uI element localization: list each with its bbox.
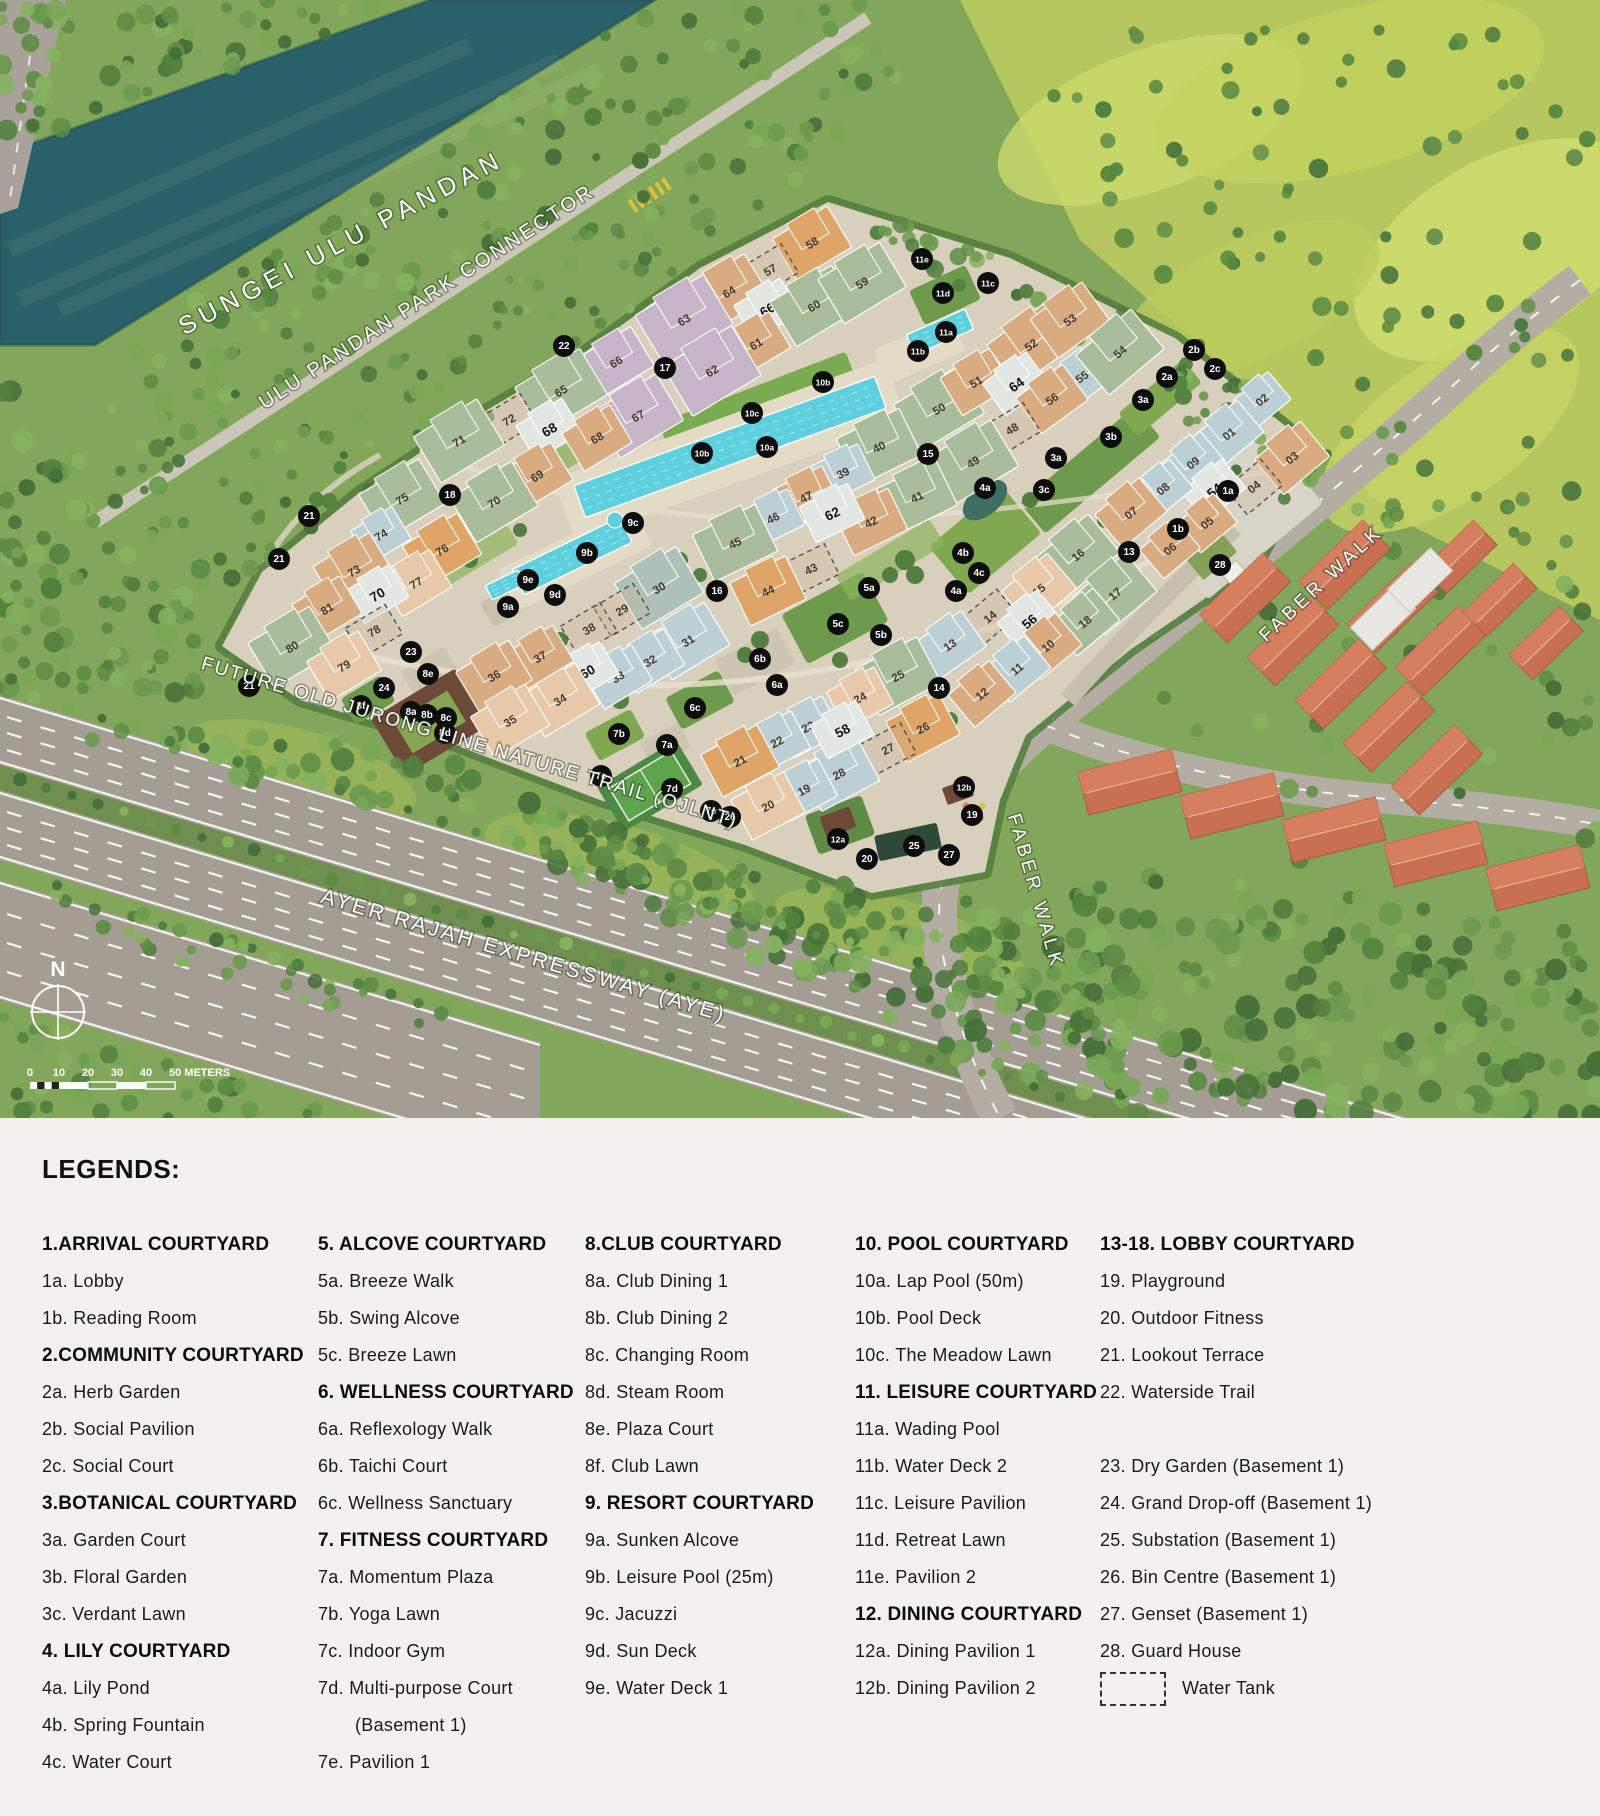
legend-item: 27. Genset (Basement 1) [1100, 1596, 1540, 1633]
legend-column-5: 13-18. LOBBY COURTYARD19. Playground20. … [1100, 1226, 1540, 1781]
legend-item: 22. Waterside Trail [1100, 1374, 1540, 1411]
svg-text:4a: 4a [979, 483, 991, 494]
legend-item: 6a. Reflexology Walk [318, 1411, 585, 1448]
legend-heading: 12. DINING COURTYARD [855, 1596, 1100, 1633]
svg-text:5b: 5b [875, 630, 887, 641]
svg-text:16: 16 [711, 586, 723, 597]
legend-item: 26. Bin Centre (Basement 1) [1100, 1559, 1540, 1596]
svg-text:17: 17 [659, 363, 671, 374]
legend-heading: 5. ALCOVE COURTYARD [318, 1226, 585, 1263]
legend-item: 8a. Club Dining 1 [585, 1263, 855, 1300]
legend-column-4: 10. POOL COURTYARD10a. Lap Pool (50m)10b… [855, 1226, 1100, 1781]
jacuzzi-9c [607, 512, 623, 528]
svg-text:21: 21 [273, 554, 285, 565]
svg-text:14: 14 [933, 683, 945, 694]
legend-item: 9d. Sun Deck [585, 1633, 855, 1670]
legend-item: 24. Grand Drop-off (Basement 1) [1100, 1485, 1540, 1522]
svg-text:21: 21 [303, 511, 315, 522]
legend-item: 5b. Swing Alcove [318, 1300, 585, 1337]
legend-title: LEGENDS: [42, 1154, 180, 1185]
svg-text:7a: 7a [661, 740, 673, 751]
amenity-badge-18: 18 [439, 484, 461, 506]
amenity-badge-16: 16 [706, 580, 728, 602]
legend-heading: 2.COMMUNITY COURTYARD [42, 1337, 318, 1374]
amenity-badge-3a: 3a [1132, 389, 1154, 411]
svg-text:4a: 4a [950, 586, 962, 597]
amenity-badge-11d: 11d [932, 282, 954, 304]
legend-item: 6c. Wellness Sanctuary [318, 1485, 585, 1522]
svg-text:28: 28 [1214, 560, 1226, 571]
amenity-badge-7b: 7b [608, 723, 630, 745]
site-plan-svg: 5857646661636059666265677268687169707574… [0, 0, 1600, 1118]
svg-text:9e: 9e [522, 575, 534, 586]
amenity-badge-13: 13 [1118, 541, 1140, 563]
legend-item: 19. Playground [1100, 1263, 1540, 1300]
legend-item-continuation: (Basement 1) [318, 1707, 585, 1744]
amenity-badge-6a: 6a [766, 674, 788, 696]
legend-item: 8c. Changing Room [585, 1337, 855, 1374]
legend-item: 11e. Pavilion 2 [855, 1559, 1100, 1596]
legend-heading: 13-18. LOBBY COURTYARD [1100, 1226, 1540, 1263]
legend-heading: 1.ARRIVAL COURTYARD [42, 1226, 318, 1263]
legend-heading: 10. POOL COURTYARD [855, 1226, 1100, 1263]
svg-text:13: 13 [1123, 547, 1135, 558]
legend-heading: 8.CLUB COURTYARD [585, 1226, 855, 1263]
amenity-badge-1a: 1a [1217, 480, 1239, 502]
legend-item: 7d. Multi-purpose Court [318, 1670, 585, 1707]
amenity-badge-24: 24 [373, 677, 395, 699]
amenity-badge-2b: 2b [1183, 339, 1205, 361]
legend-heading: 11. LEISURE COURTYARD [855, 1374, 1100, 1411]
svg-text:4c: 4c [973, 568, 985, 579]
legend-column-1: 1.ARRIVAL COURTYARD1a. Lobby1b. Reading … [42, 1226, 318, 1781]
amenity-badge-11a: 11a [935, 321, 957, 343]
legend-item: 11b. Water Deck 2 [855, 1448, 1100, 1485]
legend-heading: 6. WELLNESS COURTYARD [318, 1374, 585, 1411]
legend-item: 2a. Herb Garden [42, 1374, 318, 1411]
svg-text:2a: 2a [1161, 372, 1173, 383]
legend-item: 4b. Spring Fountain [42, 1707, 318, 1744]
legend-item: 8f. Club Lawn [585, 1448, 855, 1485]
svg-text:9c: 9c [627, 518, 639, 529]
amenity-badge-2c: 2c [1204, 358, 1226, 380]
svg-text:20: 20 [82, 1067, 94, 1079]
svg-text:12b: 12b [957, 783, 972, 793]
amenity-badge-12b: 12b [953, 776, 975, 798]
legend-heading: 7. FITNESS COURTYARD [318, 1522, 585, 1559]
amenity-badge-5a: 5a [858, 577, 880, 599]
legend-column-2: 5. ALCOVE COURTYARD5a. Breeze Walk5b. Sw… [318, 1226, 585, 1781]
amenity-badge-28: 28 [1209, 554, 1231, 576]
svg-text:0: 0 [27, 1067, 33, 1079]
amenity-badge-7a: 7a [656, 734, 678, 756]
legend-heading: 3.BOTANICAL COURTYARD [42, 1485, 318, 1522]
legend-item: 8b. Club Dining 2 [585, 1300, 855, 1337]
legend-item: 10a. Lap Pool (50m) [855, 1263, 1100, 1300]
svg-text:3a: 3a [1050, 453, 1062, 464]
amenity-badge-1b: 1b [1167, 518, 1189, 540]
legend-item: 9b. Leisure Pool (25m) [585, 1559, 855, 1596]
svg-text:10b: 10b [816, 378, 831, 388]
amenity-badge-21: 21 [298, 505, 320, 527]
svg-text:6a: 6a [771, 680, 783, 691]
amenity-badge-9c: 9c [622, 512, 644, 534]
legend-item: 8d. Steam Room [585, 1374, 855, 1411]
svg-text:3a: 3a [1137, 395, 1149, 406]
legend-item: 9c. Jacuzzi [585, 1596, 855, 1633]
svg-text:11e: 11e [915, 255, 929, 265]
svg-text:27: 27 [943, 850, 955, 861]
legend-item: 9e. Water Deck 1 [585, 1670, 855, 1707]
legend-item: 5c. Breeze Lawn [318, 1337, 585, 1374]
amenity-badge-23: 23 [400, 641, 422, 663]
legend-heading: 4. LILY COURTYARD [42, 1633, 318, 1670]
amenity-badge-22: 22 [553, 335, 575, 357]
svg-text:9d: 9d [549, 590, 561, 601]
legend-item: 2b. Social Pavilion [42, 1411, 318, 1448]
amenity-badge-17: 17 [654, 357, 676, 379]
legend-item: 3b. Floral Garden [42, 1559, 318, 1596]
legend-item: 25. Substation (Basement 1) [1100, 1522, 1540, 1559]
svg-text:1a: 1a [1222, 486, 1234, 497]
svg-text:50 METERS: 50 METERS [169, 1067, 230, 1079]
amenity-badge-3b: 3b [1100, 426, 1122, 448]
amenity-badge-15: 15 [917, 443, 939, 465]
amenity-badge-27: 27 [938, 844, 960, 866]
amenity-badge-2a: 2a [1156, 366, 1178, 388]
svg-text:3c: 3c [1038, 485, 1050, 496]
legend-item: 6b. Taichi Court [318, 1448, 585, 1485]
amenity-badge-10c: 10c [741, 402, 763, 424]
legend-item: 4a. Lily Pond [42, 1670, 318, 1707]
amenity-badge-4c: 4c [968, 562, 990, 584]
amenity-badge-10b: 10b [812, 371, 834, 393]
legend-item: 11c. Leisure Pavilion [855, 1485, 1100, 1522]
legend-section: LEGENDS: 1.ARRIVAL COURTYARD1a. Lobby1b.… [0, 1118, 1600, 1816]
svg-text:3b: 3b [1105, 432, 1117, 443]
legend-item: 7b. Yoga Lawn [318, 1596, 585, 1633]
amenity-badge-11e: 11e [911, 248, 933, 270]
legend-item: 4c. Water Court [42, 1744, 318, 1781]
svg-text:40: 40 [140, 1067, 152, 1079]
amenity-badge-9a: 9a [497, 596, 519, 618]
svg-text:23: 23 [405, 647, 417, 658]
svg-text:19: 19 [966, 810, 978, 821]
amenity-badge-12a: 12a [827, 828, 849, 850]
legend-item: 10c. The Meadow Lawn [855, 1337, 1100, 1374]
amenity-badge-5b: 5b [870, 624, 892, 646]
legend-item: 23. Dry Garden (Basement 1) [1100, 1448, 1540, 1485]
site-plan-page: 5857646661636059666265677268687169707574… [0, 0, 1600, 1816]
legend-item: 3a. Garden Court [42, 1522, 318, 1559]
svg-text:10a: 10a [760, 443, 774, 453]
legend-item: 28. Guard House [1100, 1633, 1540, 1670]
svg-text:8e: 8e [422, 669, 434, 680]
svg-text:N: N [50, 958, 65, 981]
legend-item: 20. Outdoor Fitness [1100, 1300, 1540, 1337]
svg-text:12a: 12a [831, 835, 845, 845]
amenity-badge-9b: 9b [576, 542, 598, 564]
svg-text:20: 20 [861, 854, 873, 865]
svg-text:9b: 9b [581, 548, 593, 559]
legend-item: 7c. Indoor Gym [318, 1633, 585, 1670]
amenity-badge-20: 20 [856, 848, 878, 870]
legend-item: 7a. Momentum Plaza [318, 1559, 585, 1596]
svg-text:1b: 1b [1172, 524, 1184, 535]
amenity-badge-9e: 9e [517, 569, 539, 591]
legend-item: 11a. Wading Pool [855, 1411, 1100, 1448]
svg-text:10b: 10b [695, 449, 710, 459]
svg-text:18: 18 [444, 490, 456, 501]
amenity-badge-10a: 10a [756, 436, 778, 458]
legend-column-3: 8.CLUB COURTYARD8a. Club Dining 18b. Clu… [585, 1226, 855, 1781]
amenity-badge-9d: 9d [544, 584, 566, 606]
amenity-badge-3c: 3c [1033, 479, 1055, 501]
svg-text:11a: 11a [939, 328, 953, 338]
legend-water-tank: Water Tank [1100, 1670, 1540, 1707]
legend-item: 3c. Verdant Lawn [42, 1596, 318, 1633]
water-tank-label: Water Tank [1182, 1678, 1275, 1699]
svg-text:10c: 10c [745, 409, 759, 419]
svg-text:22: 22 [558, 341, 570, 352]
amenity-badge-3a: 3a [1045, 447, 1067, 469]
legend-columns: 1.ARRIVAL COURTYARD1a. Lobby1b. Reading … [42, 1226, 1540, 1781]
svg-text:4b: 4b [957, 548, 969, 559]
amenity-badge-21: 21 [268, 548, 290, 570]
site-plan-map: 5857646661636059666265677268687169707574… [0, 0, 1600, 1118]
legend-item: 8e. Plaza Court [585, 1411, 855, 1448]
amenity-badge-4b: 4b [952, 542, 974, 564]
svg-text:6b: 6b [754, 654, 766, 665]
amenity-badge-14: 14 [928, 677, 950, 699]
amenity-badge-6b: 6b [749, 648, 771, 670]
svg-text:11c: 11c [981, 279, 995, 289]
svg-text:2c: 2c [1209, 364, 1221, 375]
amenity-badge-4a: 4a [945, 580, 967, 602]
svg-text:11b: 11b [911, 347, 925, 357]
legend-item: 21. Lookout Terrace [1100, 1337, 1540, 1374]
amenity-badge-6c: 6c [684, 697, 706, 719]
svg-text:5a: 5a [863, 583, 875, 594]
legend-item: 12b. Dining Pavilion 2 [855, 1670, 1100, 1707]
amenity-badge-11b: 11b [907, 340, 929, 362]
legend-item: 12a. Dining Pavilion 1 [855, 1633, 1100, 1670]
svg-text:11d: 11d [936, 289, 950, 299]
svg-text:25: 25 [908, 841, 920, 852]
svg-text:24: 24 [378, 683, 390, 694]
legend-item: 1b. Reading Room [42, 1300, 318, 1337]
svg-text:2b: 2b [1188, 345, 1200, 356]
svg-text:9a: 9a [502, 602, 514, 613]
legend-item: 5a. Breeze Walk [318, 1263, 585, 1300]
legend-item: 1a. Lobby [42, 1263, 318, 1300]
svg-text:6c: 6c [689, 703, 701, 714]
water-tank-swatch [1100, 1672, 1166, 1706]
svg-text:15: 15 [922, 449, 934, 460]
legend-heading: 9. RESORT COURTYARD [585, 1485, 855, 1522]
amenity-badge-5c: 5c [827, 613, 849, 635]
svg-text:30: 30 [111, 1067, 123, 1079]
amenity-badge-10b: 10b [691, 442, 713, 464]
svg-text:10: 10 [53, 1067, 65, 1079]
svg-text:7b: 7b [613, 729, 625, 740]
legend-item: 11d. Retreat Lawn [855, 1522, 1100, 1559]
amenity-badge-4a: 4a [974, 477, 996, 499]
legend-item: 10b. Pool Deck [855, 1300, 1100, 1337]
legend-item: 9a. Sunken Alcove [585, 1522, 855, 1559]
amenity-badge-19: 19 [961, 804, 983, 826]
svg-text:5c: 5c [832, 619, 844, 630]
amenity-badge-11c: 11c [977, 272, 999, 294]
legend-item: 7e. Pavilion 1 [318, 1744, 585, 1781]
amenity-badge-25: 25 [903, 835, 925, 857]
legend-item: 2c. Social Court [42, 1448, 318, 1485]
amenity-badge-8e: 8e [417, 663, 439, 685]
